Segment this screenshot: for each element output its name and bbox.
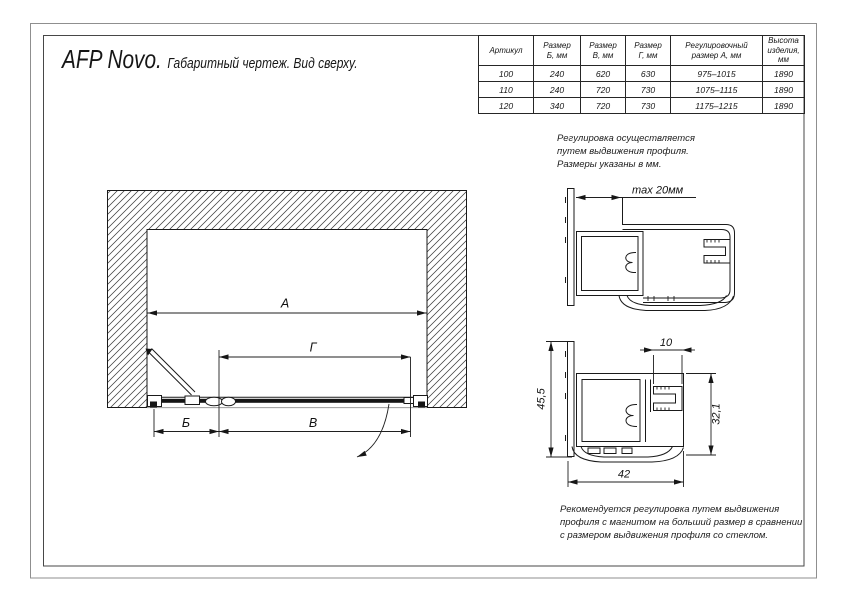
foot-slot — [588, 448, 600, 454]
title-block: AFP Novo.Габаритный чертеж. Вид сверху. — [62, 44, 358, 75]
table-row: 110 240 720 730 1075–1115 1890 — [479, 82, 805, 98]
wall-strip — [568, 189, 575, 306]
extension-lines — [154, 350, 411, 437]
dim-label-45: 45,5 — [536, 387, 548, 409]
panel-connector — [185, 396, 200, 405]
table-cell: 1890 — [763, 82, 805, 98]
dim-label-42: 42 — [618, 469, 630, 481]
col-header-article: Артикул — [479, 36, 534, 66]
dim-label-max20: max 20мм — [632, 185, 684, 197]
table-cell: 1890 — [763, 66, 805, 82]
table-cell: 620 — [581, 66, 626, 82]
product-name: AFP Novo. — [62, 44, 162, 74]
clamp-channel — [704, 240, 730, 264]
dim-label-10: 10 — [660, 337, 673, 349]
dim-label-a: A — [280, 297, 289, 311]
table-cell: 975–1015 — [671, 66, 763, 82]
drawing-description: Габаритный чертеж. Вид сверху. — [167, 55, 357, 72]
size-table: Артикул РазмерБ, мм РазмерВ, мм РазмерГ,… — [478, 35, 805, 114]
sheet-frame-inner — [44, 36, 805, 567]
dim-label-32: 32,1 — [711, 403, 723, 424]
table-cell: 240 — [534, 82, 581, 98]
note-line: профиля с магнитом на больший размер в с… — [560, 516, 802, 529]
note-line: с размером выдвижения профиля со стеклом… — [560, 529, 802, 542]
plan-view: A Г Б В — [108, 191, 467, 458]
fixed-profile-box — [577, 232, 644, 296]
table-row: 100 240 620 630 975–1015 1890 — [479, 66, 805, 82]
table-cell: 1175–1215 — [671, 98, 763, 114]
foot-slot — [604, 448, 616, 454]
wall-profile-right-core — [418, 402, 425, 408]
table-cell: 240 — [534, 66, 581, 82]
table-cell: 630 — [626, 66, 671, 82]
dim-label-b: Б — [182, 416, 190, 430]
profile-detail-top: max 20мм — [566, 185, 735, 311]
col-header-size-b: РазмерБ, мм — [534, 36, 581, 66]
door-swing-arc — [357, 404, 389, 457]
folded-panel-lines — [146, 349, 196, 396]
table-cell: 730 — [626, 82, 671, 98]
dim-label-v: В — [309, 416, 317, 430]
foot-slot — [622, 448, 632, 454]
note-line: путем выдвижения профиля. — [557, 145, 695, 158]
note-line: Размеры указаны в мм. — [557, 158, 695, 171]
col-header-adjust-a: Регулировочныйразмер А, мм — [671, 36, 763, 66]
hinge-ellipse-right — [222, 397, 236, 406]
profile-detail-bottom: 45,5 10 32,1 42 — [536, 337, 723, 487]
dim-label-g: Г — [310, 341, 318, 355]
table-cell: 730 — [626, 98, 671, 114]
table-row: 120 340 720 730 1175–1215 1890 — [479, 98, 805, 114]
table-cell: 720 — [581, 98, 626, 114]
table-header-row: Артикул РазмерБ, мм РазмерВ, мм РазмерГ,… — [479, 36, 805, 66]
note-line: Регулировка осуществляется — [557, 132, 695, 145]
table-cell: 720 — [581, 82, 626, 98]
col-header-size-v: РазмерВ, мм — [581, 36, 626, 66]
note-line: Рекомендуется регулировка путем выдвижен… — [560, 503, 802, 516]
profile-foot-inner — [627, 296, 727, 306]
table-cell: 120 — [479, 98, 534, 114]
magnet-profile — [404, 398, 414, 404]
wall-strip — [568, 342, 575, 457]
table-cell: 100 — [479, 66, 534, 82]
table-cell: 1890 — [763, 98, 805, 114]
drawing-sheet: A Г Б В max 20мм — [0, 0, 849, 600]
wall-profile-left-core — [150, 402, 157, 408]
col-header-height: Высотаизделия,мм — [763, 36, 805, 66]
table-cell: 340 — [534, 98, 581, 114]
adjustment-note: Регулировка осуществляется путем выдвиже… — [557, 132, 695, 171]
col-header-size-g: РазмерГ, мм — [626, 36, 671, 66]
table-cell: 1075–1115 — [671, 82, 763, 98]
recommendation-note: Рекомендуется регулировка путем выдвижен… — [560, 503, 802, 542]
table-cell: 110 — [479, 82, 534, 98]
hinge-ellipse-left — [206, 397, 223, 406]
